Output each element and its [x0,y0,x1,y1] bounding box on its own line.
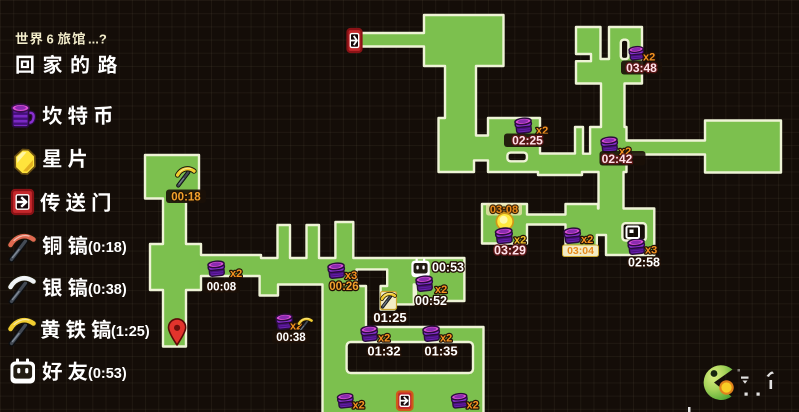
svg-text:03:04: 03:04 [567,245,594,257]
svg-text:x2: x2 [353,400,365,412]
svg-text:02:42: 02:42 [602,152,633,166]
svg-text:00:08: 00:08 [207,282,237,294]
svg-text:...?: ...? [88,32,107,47]
svg-text:01:32: 01:32 [367,344,400,359]
svg-text:x2: x2 [230,268,242,280]
svg-text:01:25: 01:25 [373,310,406,325]
svg-text:02:25: 02:25 [512,134,543,148]
svg-text:03:29: 03:29 [494,244,526,258]
svg-text:6: 6 [47,32,54,47]
svg-text:(0:18): (0:18) [88,240,127,256]
svg-text:00:53: 00:53 [432,261,464,275]
svg-text:03:48: 03:48 [626,61,657,75]
svg-text:x2: x2 [467,400,479,412]
svg-text:(1:25): (1:25) [111,324,150,340]
svg-text:(0:38): (0:38) [88,282,127,298]
svg-text:00:26: 00:26 [329,281,358,293]
svg-text:00:18: 00:18 [171,192,201,204]
svg-text:02:58: 02:58 [628,256,660,270]
svg-text:00:38: 00:38 [276,332,306,344]
svg-text:(0:53): (0:53) [88,366,127,382]
svg-text:00:52: 00:52 [415,294,447,308]
svg-text:01:35: 01:35 [424,344,457,359]
